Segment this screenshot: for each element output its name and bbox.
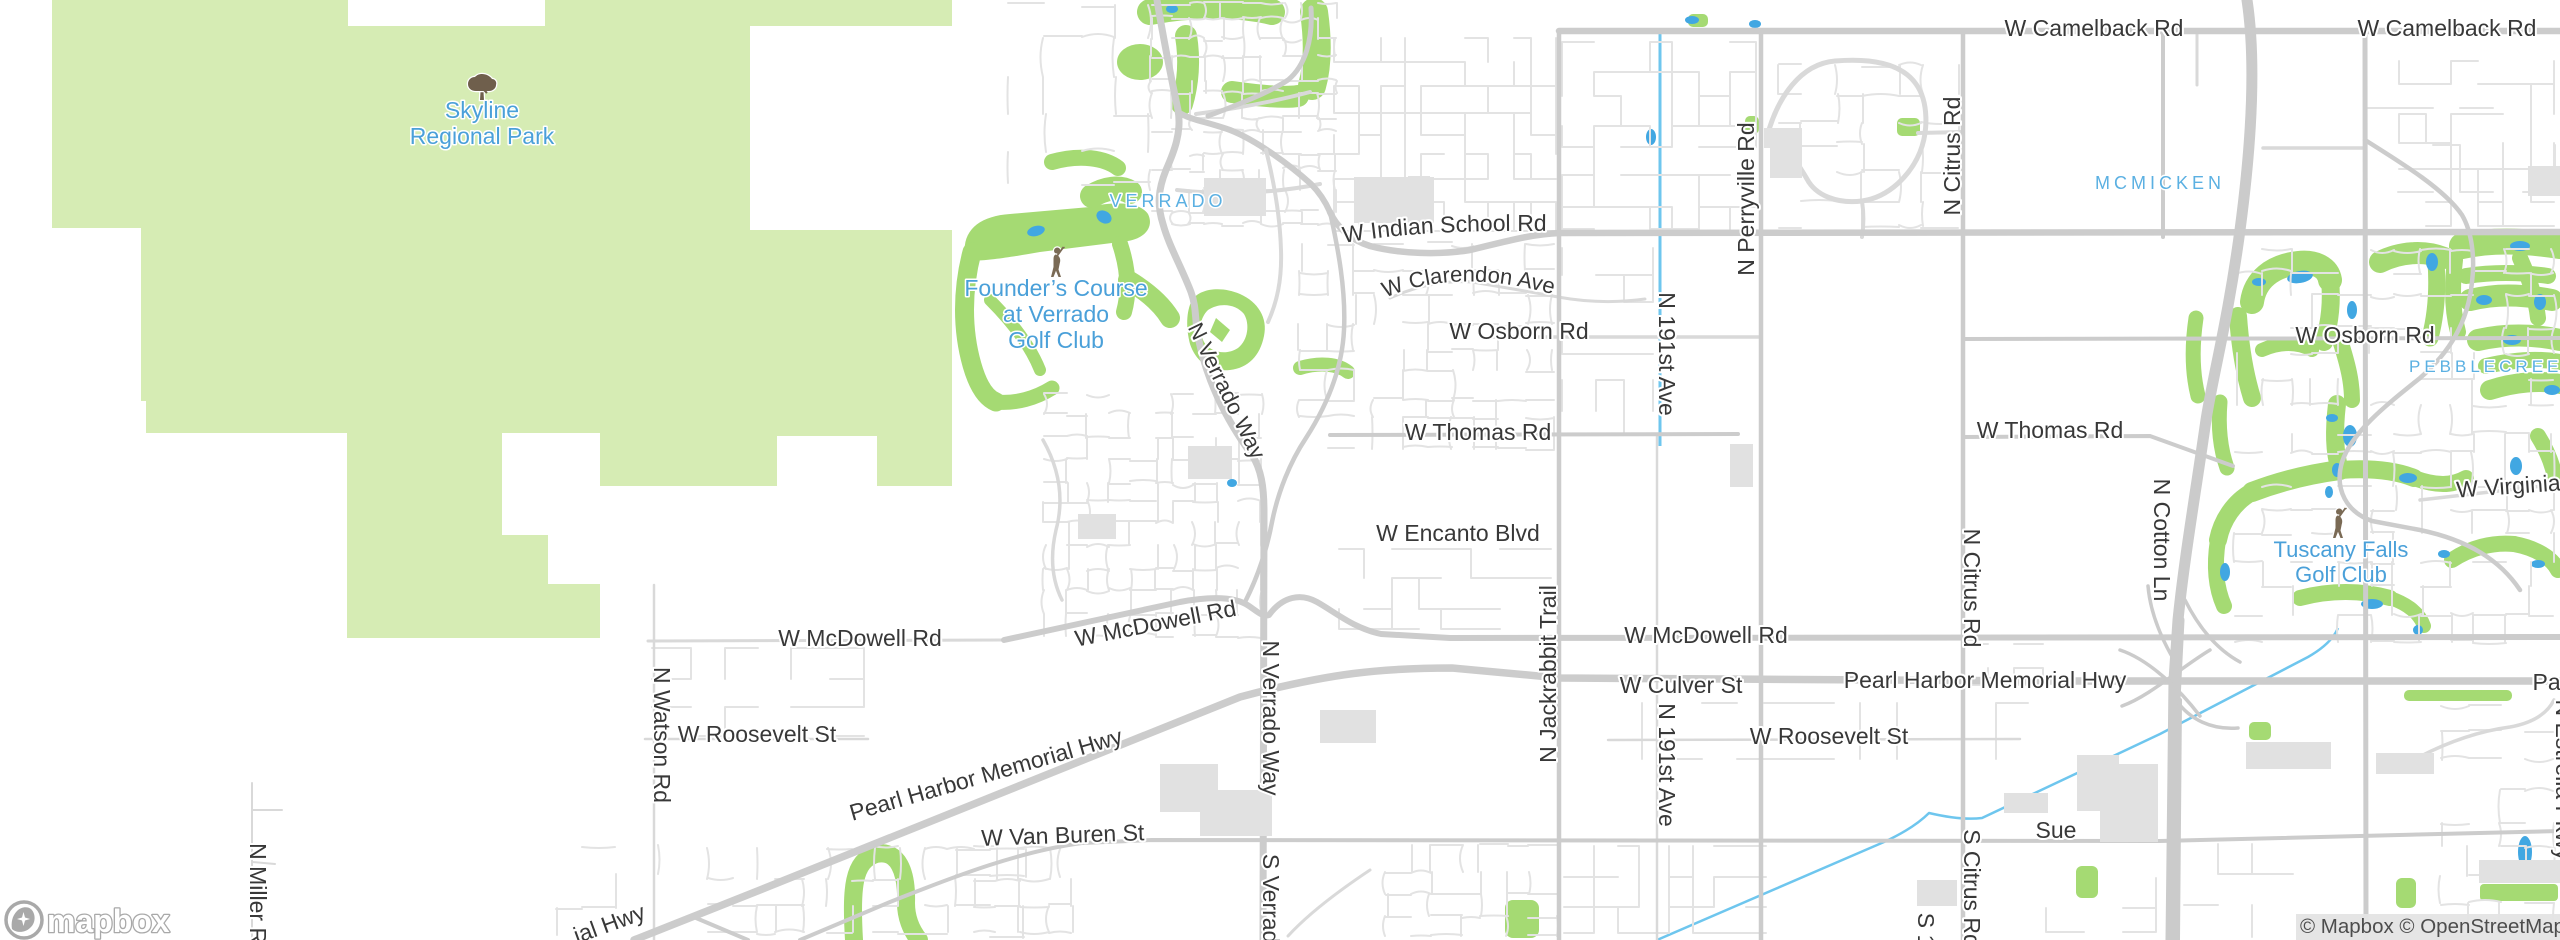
- svg-text:mapbox: mapbox: [47, 903, 170, 939]
- svg-text:N Miller Ro: N Miller Ro: [245, 843, 271, 940]
- svg-text:PEBBLECREEK: PEBBLECREEK: [2409, 357, 2560, 376]
- svg-text:W Culver St: W Culver St: [1620, 672, 1743, 698]
- svg-text:W McDowell Rd: W McDowell Rd: [778, 625, 942, 651]
- svg-text:Pap: Pap: [2533, 669, 2560, 695]
- svg-text:N Citrus Rd: N Citrus Rd: [1939, 97, 1965, 216]
- svg-text:W Osborn Rd: W Osborn Rd: [2295, 322, 2434, 348]
- svg-text:N Jackrabbit Trail: N Jackrabbit Trail: [1535, 585, 1561, 763]
- svg-text:Skyline: Skyline: [445, 97, 519, 123]
- svg-text:N Watson Rd: N Watson Rd: [649, 667, 675, 803]
- svg-text:N 191st Ave: N 191st Ave: [1654, 292, 1680, 416]
- svg-text:S Verrado: S Verrado: [1258, 854, 1284, 940]
- svg-text:W Thomas Rd: W Thomas Rd: [1977, 417, 2124, 443]
- svg-text:W Camelback Rd: W Camelback Rd: [2358, 15, 2537, 41]
- svg-text:W McDowell Rd: W McDowell Rd: [1624, 622, 1788, 648]
- svg-text:W Roosevelt St: W Roosevelt St: [1750, 723, 1909, 749]
- svg-text:MCMICKEN: MCMICKEN: [2095, 173, 2225, 193]
- svg-text:W Roosevelt St: W Roosevelt St: [678, 721, 837, 747]
- svg-text:Golf Club: Golf Club: [2295, 562, 2387, 587]
- svg-text:Sue: Sue: [2036, 817, 2077, 843]
- svg-text:N Cotton Ln: N Cotton Ln: [2149, 479, 2175, 602]
- svg-text:N Verrado Way: N Verrado Way: [1258, 640, 1284, 796]
- svg-text:N Estrella Pkwy: N Estrella Pkwy: [2551, 699, 2560, 861]
- svg-text:Founder’s Course: Founder’s Course: [964, 275, 1147, 301]
- svg-text:S 1: S 1: [1913, 913, 1939, 940]
- svg-text:© Mapbox © OpenStreetMap: © Mapbox © OpenStreetMap: [2300, 915, 2560, 938]
- svg-text:Pearl Harbor Memorial Hwy: Pearl Harbor Memorial Hwy: [1844, 667, 2127, 693]
- svg-text:S Citrus Rd: S Citrus Rd: [1959, 829, 1985, 940]
- svg-text:N 191st Ave: N 191st Ave: [1654, 703, 1680, 827]
- svg-text:Tuscany Falls: Tuscany Falls: [2274, 537, 2409, 562]
- svg-text:Regional Park: Regional Park: [410, 123, 555, 149]
- svg-text:Golf Club: Golf Club: [1008, 327, 1104, 353]
- svg-text:W Thomas Rd: W Thomas Rd: [1405, 419, 1552, 445]
- svg-text:VERRADO: VERRADO: [1109, 191, 1226, 211]
- svg-text:at Verrado: at Verrado: [1003, 301, 1109, 327]
- svg-text:W Osborn Rd: W Osborn Rd: [1449, 318, 1588, 344]
- svg-text:N Perryville Rd: N Perryville Rd: [1733, 122, 1759, 275]
- svg-text:W Encanto Blvd: W Encanto Blvd: [1376, 520, 1540, 546]
- svg-text:W Camelback Rd: W Camelback Rd: [2005, 15, 2184, 41]
- svg-text:N Citrus Rd: N Citrus Rd: [1959, 529, 1985, 648]
